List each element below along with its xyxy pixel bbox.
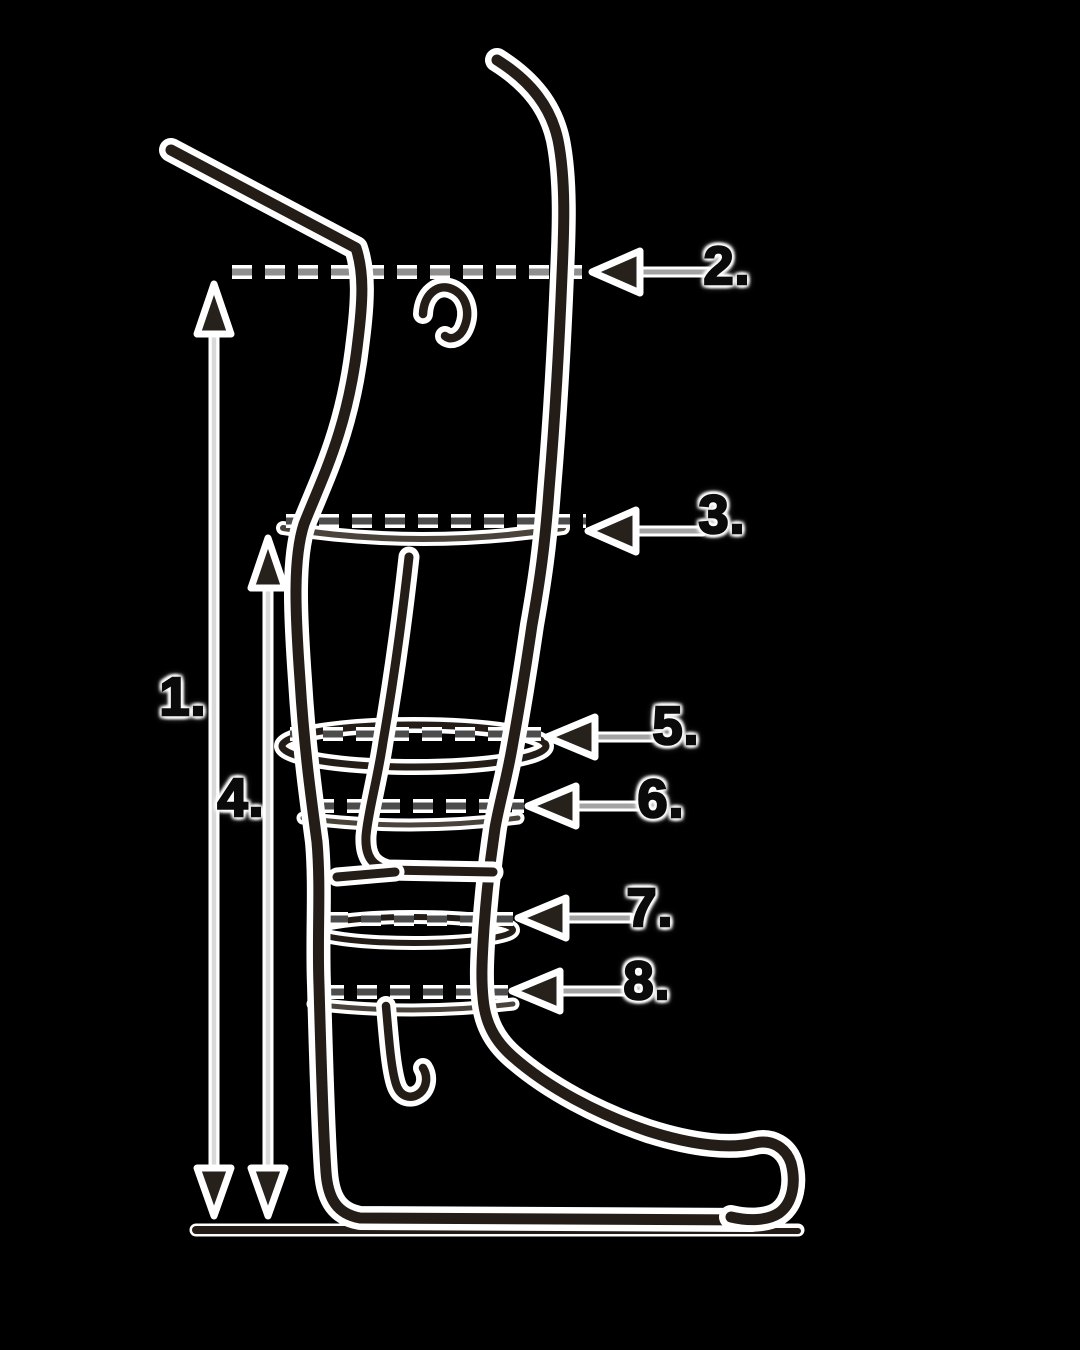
measurement-label-3: 3. [698, 484, 745, 546]
arrow-level-5-icon [547, 717, 654, 757]
measurement-label-8: 8. [623, 950, 670, 1012]
measurement-label-7: 7. [626, 877, 673, 939]
arrow-level-2-icon [592, 251, 708, 293]
knee-circumference-arc [283, 528, 563, 539]
arrow-down-icon [251, 1168, 285, 1216]
leg-measurement-diagram: 1. 2. 3. 4. 5. 6. 7. 8. [0, 0, 1080, 1350]
arrow-level-7-icon [518, 898, 630, 938]
arrow-down-icon [197, 1168, 231, 1216]
measurement-label-1: 1. [159, 666, 206, 728]
arrow-level-3-icon [588, 510, 702, 552]
measurement-label-2: 2. [703, 235, 750, 297]
measurement-label-4: 4. [217, 767, 264, 829]
arrow-up-icon [251, 538, 285, 588]
measurement-line-4 [251, 538, 285, 1216]
measurement-label-5: 5. [652, 695, 699, 757]
arrow-up-icon [197, 284, 231, 334]
arrow-level-8-icon [512, 971, 632, 1011]
arrow-level-6-icon [528, 786, 644, 826]
measurement-line-1 [197, 284, 231, 1216]
measurement-label-6: 6. [637, 768, 684, 830]
